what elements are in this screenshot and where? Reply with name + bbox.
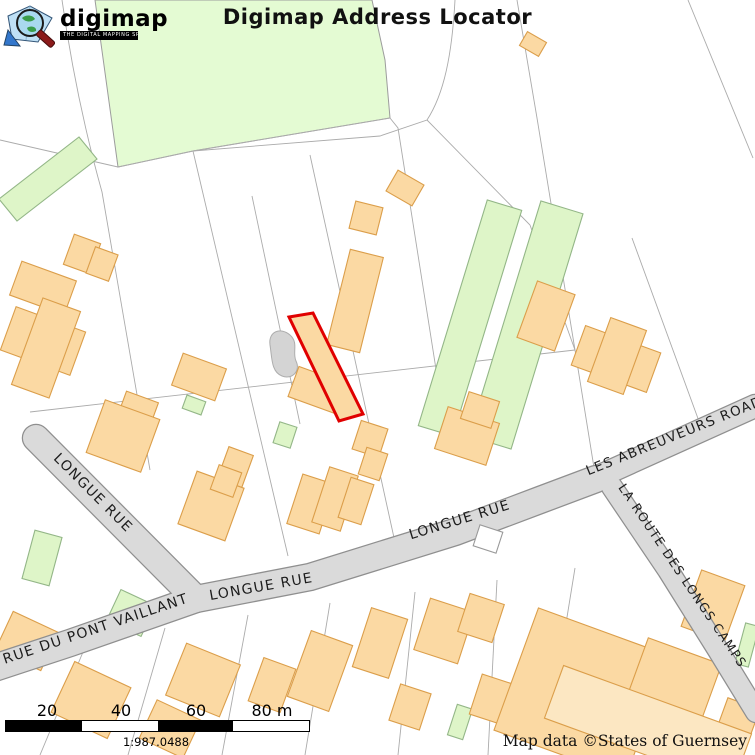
scale-bar-segments — [5, 720, 310, 732]
map-canvas: LONGUE RUERUE DU PONT VAILLANTLONGUE RUE… — [0, 0, 755, 755]
digimap-logo: digimap THE DIGITAL MAPPING SPECIALISTS — [2, 2, 202, 60]
map-attribution: Map data ©States of Guernsey — [503, 732, 747, 750]
brand-tagline: THE DIGITAL MAPPING SPECIALISTS — [60, 31, 138, 40]
scale-tick: 40 — [111, 701, 131, 720]
scale-tick: 60 — [186, 701, 206, 720]
scale-tick: 80 m — [251, 701, 292, 720]
scale-tick: 20 — [37, 701, 57, 720]
magnifier-globe-icon — [2, 2, 58, 58]
scale-bar: 20 40 60 80 m 1:987.0488 — [5, 701, 311, 749]
scale-bar-ticks: 20 40 60 80 m — [5, 701, 311, 718]
scale-ratio: 1:987.0488 — [5, 735, 311, 749]
building — [349, 201, 383, 235]
brand-name: digimap — [60, 9, 168, 30]
